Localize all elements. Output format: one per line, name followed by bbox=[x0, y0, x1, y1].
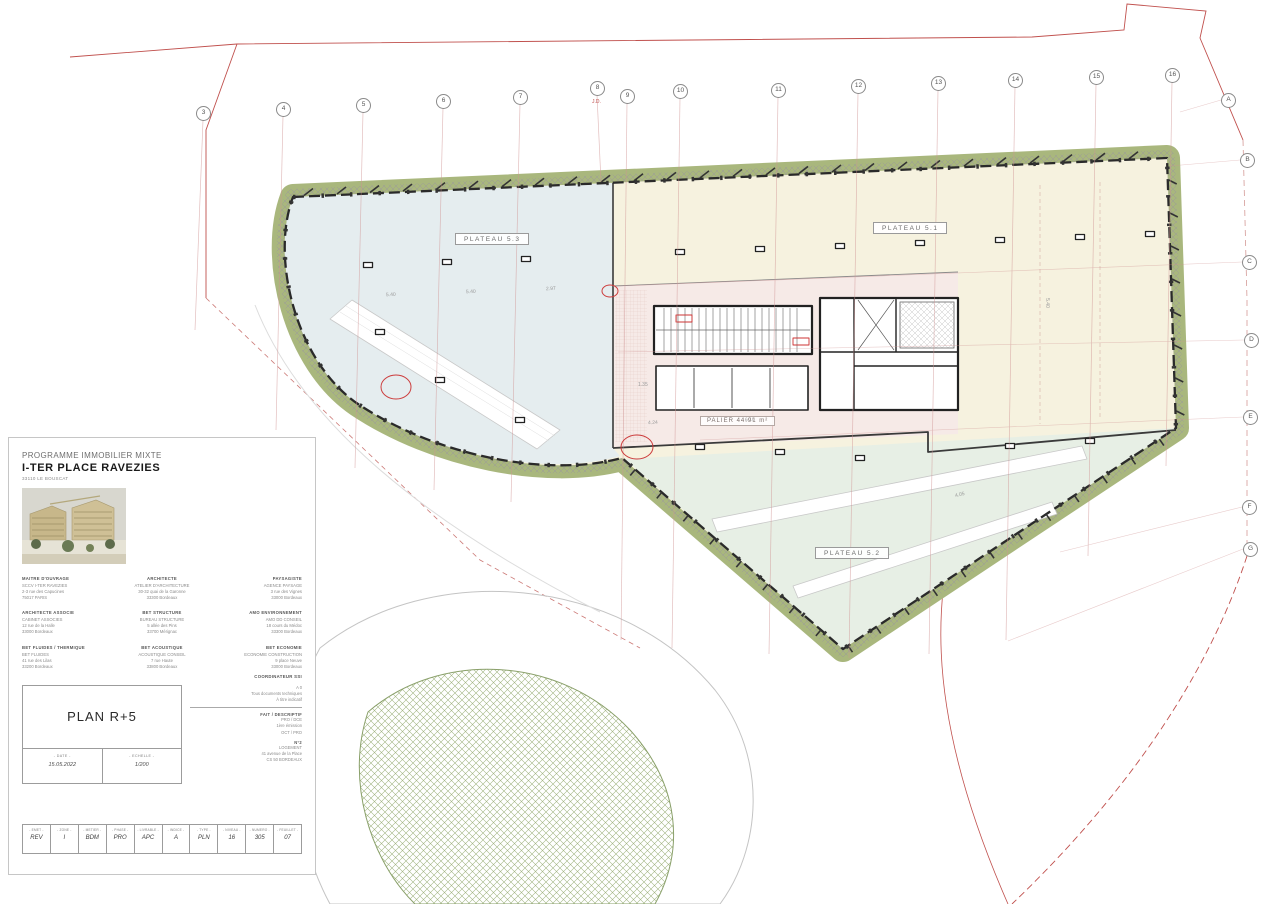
grid-bubble-top-6: 6 bbox=[436, 94, 451, 109]
code-strip-header: - NUMERO - bbox=[246, 828, 273, 832]
scale-value: 1/200 bbox=[103, 762, 182, 768]
grid-bubble-right-D: D bbox=[1244, 333, 1259, 348]
code-strip-value: APC bbox=[135, 835, 162, 841]
code-strip-header: - INDICE - bbox=[163, 828, 190, 832]
party-line: 75017 PARIS bbox=[22, 595, 110, 601]
descriptif-line: OCT / PRO bbox=[190, 730, 302, 736]
code-strip-value: 16 bbox=[218, 835, 245, 841]
title-block-party: BET ECONOMIEECONOMIE CONSTRUCTION9 place… bbox=[214, 645, 302, 670]
code-strip-header: - NIVEAU - bbox=[218, 828, 245, 832]
grid-bubble-top-16: 16 bbox=[1165, 68, 1180, 83]
grid-bubble-top-8: 8 bbox=[590, 81, 605, 96]
code-strip-value: 305 bbox=[246, 835, 273, 841]
date-value: 15.05.2022 bbox=[23, 762, 102, 768]
code-strip-value: I bbox=[51, 835, 78, 841]
code-strip-cell: - INDICE -A bbox=[162, 825, 190, 853]
code-strip-cell: - PHASE -PRO bbox=[106, 825, 134, 853]
grid-bubble-right-A: A bbox=[1221, 93, 1236, 108]
grid-bubble-right-G: G bbox=[1243, 542, 1258, 557]
code-strip-header: - LIVRABLE - bbox=[135, 828, 162, 832]
code-strip-header: - METIER - bbox=[79, 828, 106, 832]
party-role: BET FLUIDES / THERMIQUE bbox=[22, 645, 110, 650]
title-block-party: PAYSAGISTEAGENCE PAYSAGE3 rue des Vignes… bbox=[214, 576, 302, 601]
dimension-label: 5.40 bbox=[1044, 298, 1050, 308]
dimension-label: 5.40 bbox=[386, 292, 396, 299]
title-block-notes: A 0 Tous documents techniques À titre in… bbox=[182, 685, 302, 784]
grid-bubble-top-13: 13 bbox=[931, 76, 946, 91]
party-line: 33700 Mérignac bbox=[118, 629, 206, 635]
code-strip-cell: - METIER -BDM bbox=[78, 825, 106, 853]
grid-bubble-top-12: 12 bbox=[851, 79, 866, 94]
party-role: AMO ENVIRONNEMENT bbox=[214, 610, 302, 615]
dimension-label: 2.97 bbox=[546, 286, 556, 293]
party-role: BET STRUCTURE bbox=[118, 610, 206, 615]
code-strip-cell: - NUMERO -305 bbox=[245, 825, 273, 853]
project-rendering-image bbox=[22, 488, 126, 564]
code-strip-value: REV bbox=[23, 835, 50, 841]
title-block-party: BET FLUIDES / THERMIQUEBET FLUIDES41 rue… bbox=[22, 645, 110, 670]
code-strip-cell: - LIVRABLE -APC bbox=[134, 825, 162, 853]
party-line: 33800 Bordeaux bbox=[118, 664, 206, 670]
scale-cell: - ECHELLE - 1/200 bbox=[102, 749, 182, 783]
client-line: CS 50 BORDEAUX bbox=[190, 757, 302, 763]
grid-bubble-top-4: 4 bbox=[276, 102, 291, 117]
drawing-title-cell: PLAN R+5 - DATE - 15.05.2022 - ECHELLE -… bbox=[22, 685, 182, 784]
title-block-party: BET ACOUSTIQUEACOUSTIQUE CONSEIL7 rue Ha… bbox=[118, 645, 206, 670]
dimension-label: 5.40 bbox=[466, 289, 476, 296]
code-strip-cell: - TYPE -PLN bbox=[189, 825, 217, 853]
party-line: 33000 Bordeaux bbox=[214, 664, 302, 670]
dimension-label: 1.35 bbox=[638, 382, 648, 388]
drawing-title: PLAN R+5 bbox=[23, 686, 181, 748]
date-label: - DATE - bbox=[23, 754, 102, 758]
grid-bubble-right-E: E bbox=[1243, 410, 1258, 425]
party-line: 33300 Bordeaux bbox=[118, 595, 206, 601]
dimension-label: 4.24 bbox=[648, 420, 658, 426]
building bbox=[285, 152, 1185, 652]
grid-bubble-top-5: 5 bbox=[356, 98, 371, 113]
zone-label-plateau-5-3: PLATEAU 5.3 bbox=[455, 233, 529, 245]
room-label-palier: PALIER 44.91 m² bbox=[700, 416, 775, 426]
drawing-code-strip: - EMET -REV- ZONE -I- METIER -BDM- PHASE… bbox=[22, 824, 302, 854]
grid-bubble-top-14: 14 bbox=[1008, 73, 1023, 88]
code-strip-value: PLN bbox=[190, 835, 217, 841]
title-block-party: MAITRE D'OUVRAGESCCV I-TER RAVEZIES2-3 r… bbox=[22, 576, 110, 601]
zone-label-plateau-5-2: PLATEAU 5.2 bbox=[815, 547, 889, 559]
code-strip-header: - EMET - bbox=[23, 828, 50, 832]
code-strip-cell: - FEUILLET -07 bbox=[273, 825, 301, 853]
party-line: 33200 Bordeaux bbox=[22, 664, 110, 670]
code-strip-cell: - ZONE -I bbox=[50, 825, 78, 853]
grid-bubble-top-10: 10 bbox=[673, 84, 688, 99]
drawing-sheet: PLATEAU 5.3 PLATEAU 5.1 PLATEAU 5.2 PALI… bbox=[0, 0, 1280, 904]
party-role: ARCHITECTE bbox=[118, 576, 206, 581]
grid-bubble-top-3: 3 bbox=[196, 106, 211, 121]
party-role: MAITRE D'OUVRAGE bbox=[22, 576, 110, 581]
title-block-party: ARCHITECTE ASSOCIECABINET ASSOCIES12 rue… bbox=[22, 610, 110, 635]
code-strip-value: PRO bbox=[107, 835, 134, 841]
code-strip-header: - TYPE - bbox=[190, 828, 217, 832]
grid-bubble-top-9: 9 bbox=[620, 89, 635, 104]
project-name: I-TER PLACE RAVEZIES bbox=[22, 462, 302, 474]
project-location: 33110 LE BOUSCAT bbox=[22, 476, 302, 481]
code-strip-header: - ZONE - bbox=[51, 828, 78, 832]
code-strip-value: A bbox=[163, 835, 190, 841]
title-block-party: ARCHITECTEATELIER D'ARCHITECTURE30-32 qu… bbox=[118, 576, 206, 601]
title-block-party: AMO ENVIRONNEMENTAMO DD CONSEIL18 cours … bbox=[214, 610, 302, 635]
code-strip-value: 07 bbox=[274, 835, 301, 841]
party-role: BET ECONOMIE bbox=[214, 645, 302, 650]
dimension-label: 6.10 bbox=[745, 417, 755, 423]
party-line: 33000 Bordeaux bbox=[214, 595, 302, 601]
party-line: 33300 Bordeaux bbox=[214, 629, 302, 635]
date-cell: - DATE - 15.05.2022 bbox=[23, 749, 102, 783]
annotation-jd: J.D. bbox=[592, 99, 601, 105]
title-block: PROGRAMME IMMOBILIER MIXTE I-TER PLACE R… bbox=[8, 437, 316, 875]
grid-bubble-top-15: 15 bbox=[1089, 70, 1104, 85]
party-line: 33000 Bordeaux bbox=[22, 629, 110, 635]
note-line: À titre indicatif bbox=[190, 697, 302, 703]
grid-bubble-top-11: 11 bbox=[771, 83, 786, 98]
title-block-parties: MAITRE D'OUVRAGESCCV I-TER RAVEZIES2-3 r… bbox=[22, 576, 302, 670]
code-strip-value: BDM bbox=[79, 835, 106, 841]
grid-bubble-right-B: B bbox=[1240, 153, 1255, 168]
code-strip-header: - PHASE - bbox=[107, 828, 134, 832]
party-role: ARCHITECTE ASSOCIE bbox=[22, 610, 110, 615]
grid-bubble-right-F: F bbox=[1242, 500, 1257, 515]
title-block-party: BET STRUCTUREBUREAU STRUCTURE5 allée des… bbox=[118, 610, 206, 635]
zone-label-plateau-5-1: PLATEAU 5.1 bbox=[873, 222, 947, 234]
grid-bubble-top-7: 7 bbox=[513, 90, 528, 105]
party-role: PAYSAGISTE bbox=[214, 576, 302, 581]
grid-bubble-right-C: C bbox=[1242, 255, 1257, 270]
code-strip-cell: - NIVEAU -16 bbox=[217, 825, 245, 853]
code-strip-header: - FEUILLET - bbox=[274, 828, 301, 832]
project-type: PROGRAMME IMMOBILIER MIXTE bbox=[22, 451, 302, 460]
scale-label: - ECHELLE - bbox=[103, 754, 182, 758]
ssi-coordinator-label: COORDINATEUR SSI bbox=[22, 674, 302, 679]
code-strip-cell: - EMET -REV bbox=[23, 825, 50, 853]
party-role: BET ACOUSTIQUE bbox=[118, 645, 206, 650]
